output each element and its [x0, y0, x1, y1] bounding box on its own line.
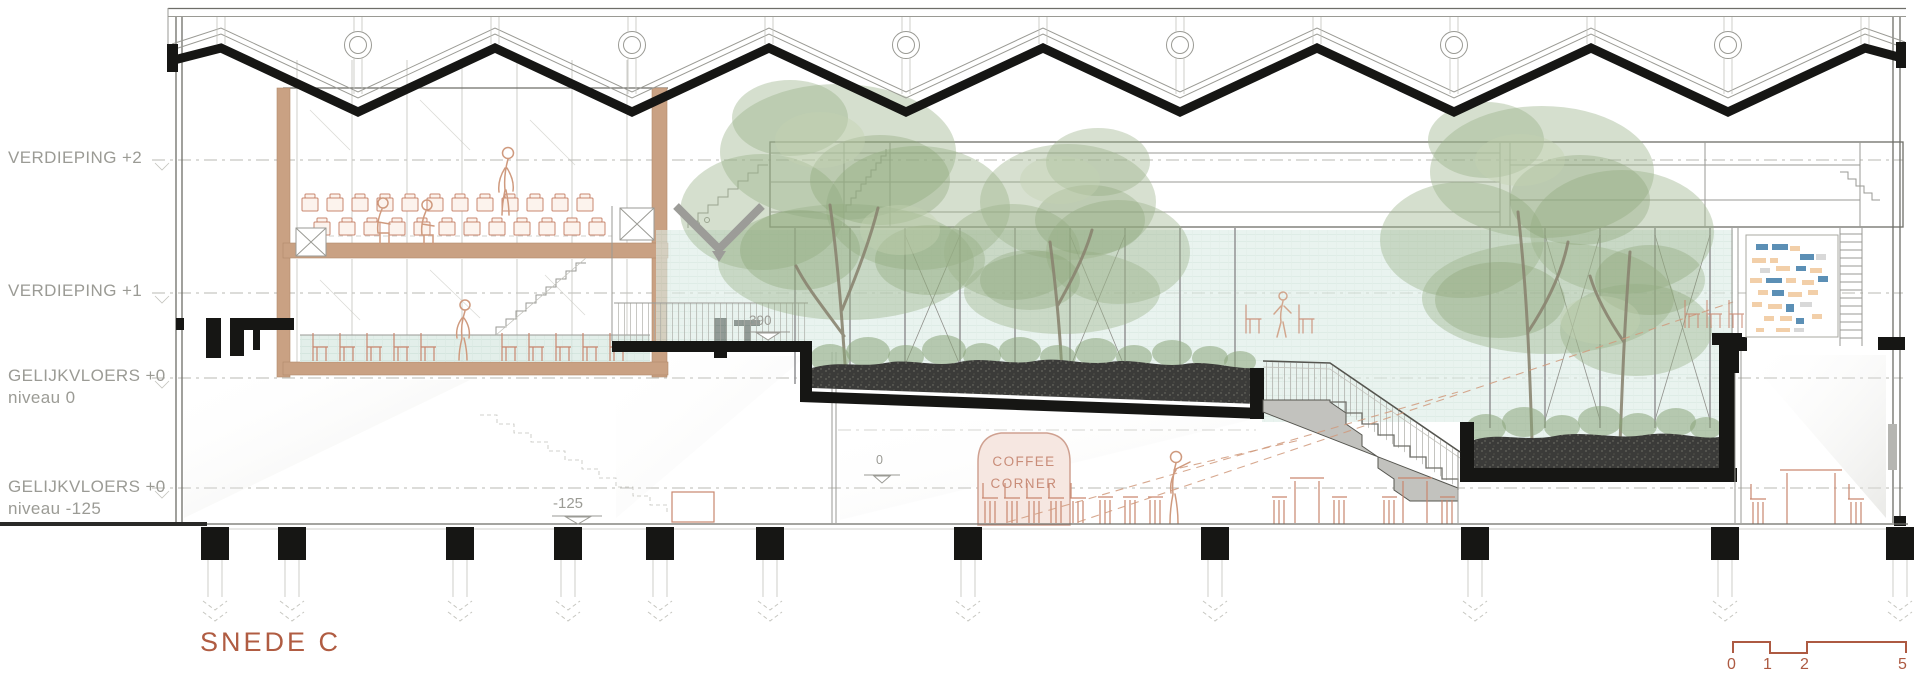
scale-tick-1: 1 [1763, 656, 1772, 674]
right-room-table [1780, 470, 1842, 524]
basement-level-annotation: -125 [553, 495, 583, 512]
foundations [0, 522, 1914, 621]
scale-tick-5: 5 [1898, 656, 1907, 674]
drawing-title: SNEDE C [200, 627, 341, 658]
level-label-text: GELIJKVLOERS +0 [8, 365, 166, 387]
scale-bar [1733, 642, 1906, 653]
mosaic-panel [1746, 235, 1838, 337]
level-label-verdieping-2: VERDIEPING +2 [8, 147, 142, 169]
coffee-corner-line1: COFFEE [976, 451, 1072, 473]
section-drawing-svg [0, 0, 1920, 687]
architectural-section-drawing: VERDIEPING +2 VERDIEPING +1 GELIJKVLOERS… [0, 0, 1920, 687]
level-label-text: GELIJKVLOERS +0 [8, 476, 166, 498]
level-label-sub: niveau -125 [8, 498, 166, 520]
coffee-corner-line2: CORNER [976, 473, 1072, 495]
level-label-gelijkvloers-0: GELIJKVLOERS +0 niveau 0 [8, 365, 166, 409]
scale-tick-0: 0 [1727, 656, 1736, 674]
level-label-gelijkvloers-min125: GELIJKVLOERS +0 niveau -125 [8, 476, 166, 520]
ladder-stair [1840, 228, 1862, 346]
auditorium-seats [302, 194, 605, 235]
level-label-verdieping-1: VERDIEPING +1 [8, 280, 142, 302]
level-label-text: VERDIEPING +2 [8, 147, 142, 169]
ground-zero-annotation: 0 [876, 453, 883, 467]
level-label-sub: niveau 0 [8, 387, 166, 409]
scale-tick-2: 2 [1800, 656, 1809, 674]
mezzanine-level-annotation: 390 [749, 313, 772, 328]
sawtooth-roof [167, 8, 1906, 112]
level-label-text: VERDIEPING +1 [8, 280, 142, 302]
coffee-corner-sign: COFFEE CORNER [976, 451, 1072, 496]
